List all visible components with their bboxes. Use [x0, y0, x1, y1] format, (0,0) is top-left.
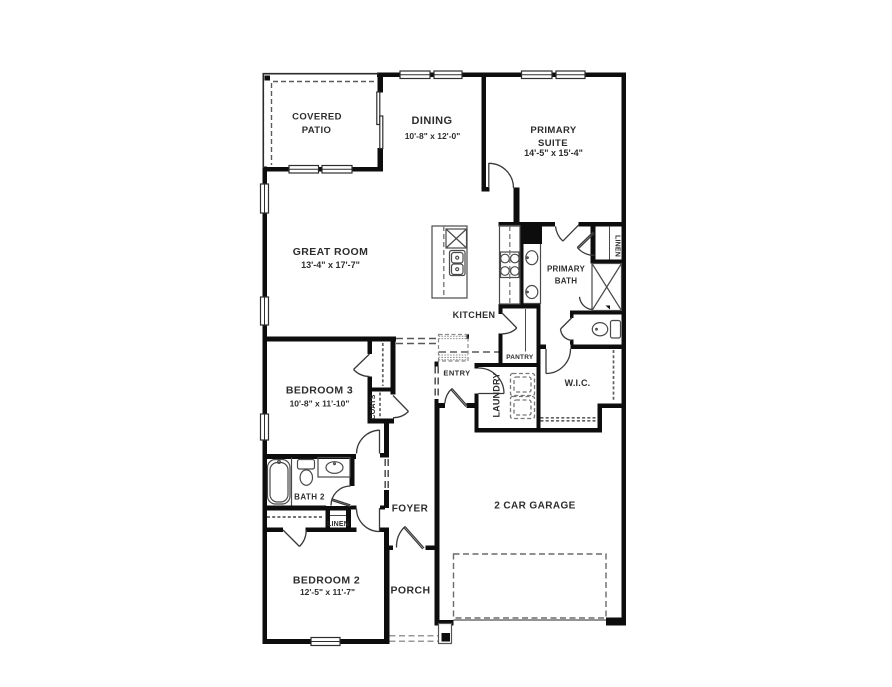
svg-text:PRIMARY: PRIMARY: [530, 125, 577, 136]
svg-text:BATH 2: BATH 2: [294, 493, 325, 502]
svg-text:DINING: DINING: [412, 115, 453, 127]
svg-text:COATS: COATS: [370, 394, 377, 419]
svg-text:13'-4" x 17'-7": 13'-4" x 17'-7": [301, 260, 360, 270]
svg-text:PORCH: PORCH: [391, 585, 431, 597]
svg-text:14'-5" x 15'-4": 14'-5" x 15'-4": [524, 148, 583, 158]
svg-text:12'-5" x 11'-7": 12'-5" x 11'-7": [300, 587, 355, 597]
svg-text:ENTRY: ENTRY: [443, 369, 470, 378]
svg-text:LINEN: LINEN: [614, 235, 621, 257]
svg-text:10'-8" x 12'-0": 10'-8" x 12'-0": [405, 131, 461, 141]
svg-text:COVERED: COVERED: [292, 112, 342, 123]
svg-text:PANTRY: PANTRY: [506, 354, 534, 361]
svg-text:FOYER: FOYER: [392, 504, 429, 515]
svg-text:GREAT ROOM: GREAT ROOM: [293, 246, 369, 258]
svg-text:LINEN: LINEN: [327, 521, 349, 528]
svg-text:LAUNDRY: LAUNDRY: [492, 372, 502, 417]
svg-text:KITCHEN: KITCHEN: [453, 310, 496, 320]
svg-text:W.I.C.: W.I.C.: [565, 378, 591, 388]
svg-text:2 CAR GARAGE: 2 CAR GARAGE: [494, 501, 575, 512]
svg-text:PRIMARY: PRIMARY: [547, 265, 585, 274]
svg-text:BEDROOM 3: BEDROOM 3: [286, 385, 353, 397]
svg-text:BATH: BATH: [555, 277, 577, 286]
svg-text:10'-8" x 11'-10": 10'-8" x 11'-10": [290, 399, 350, 409]
svg-text:BEDROOM 2: BEDROOM 2: [293, 575, 360, 587]
svg-text:PATIO: PATIO: [302, 125, 332, 136]
